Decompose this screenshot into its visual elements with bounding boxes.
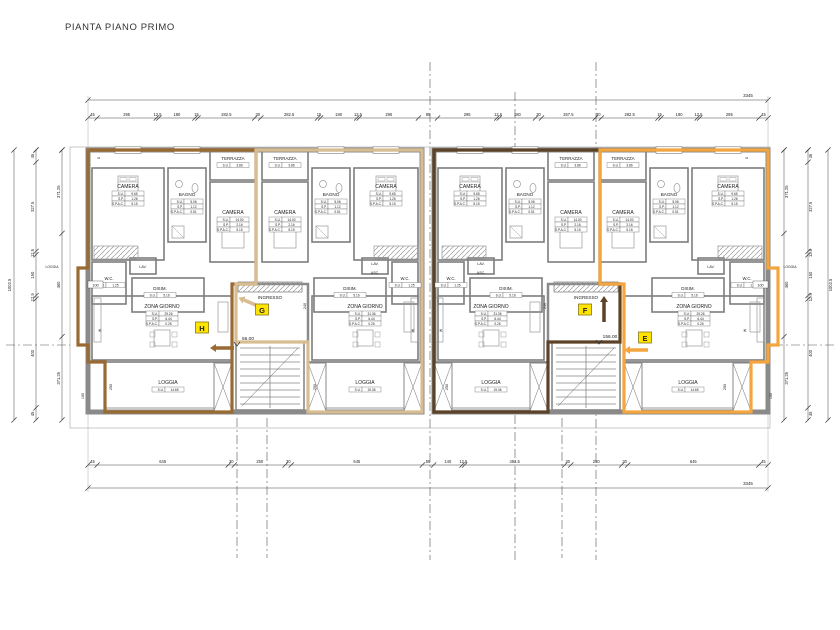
room-label-camera: CAMERA xyxy=(560,210,582,216)
dim-value: 645 xyxy=(353,459,361,464)
area-key: S.U. xyxy=(152,312,158,316)
area-value: 14.65 xyxy=(171,388,179,392)
area-key: S.U. xyxy=(678,293,684,297)
floor-plan-canvas: CAMERAS.U.9.65S.P.1.26S.P.A.C.5.15CAMERA… xyxy=(0,0,840,630)
dim-value: 45 xyxy=(761,459,766,464)
area-key: S.P.A.C. xyxy=(171,210,183,214)
area-value: 3.86 xyxy=(574,163,580,167)
area-key: S.U. xyxy=(678,388,684,392)
dim-value: 371.25 xyxy=(784,371,789,384)
dim-value: 45 xyxy=(30,153,35,158)
room-label-camera: CAMERA xyxy=(274,210,296,216)
area-value: 2.16 xyxy=(236,223,242,227)
area-key: S.U. xyxy=(177,200,183,204)
area-value: 31.36 xyxy=(494,312,502,316)
area-value: 19.36 xyxy=(368,388,376,392)
dim-value: 45 xyxy=(808,153,813,158)
dim-total-value: 1002.5 xyxy=(828,278,833,291)
area-key: S.U. xyxy=(395,283,401,287)
dim-value: 45 xyxy=(90,112,95,117)
dim-value: 30 xyxy=(622,459,627,464)
dim-value: 30 xyxy=(229,459,234,464)
area-value: 5.06 xyxy=(528,200,534,204)
room-label-terrazza: TERRAZZA xyxy=(559,156,582,161)
area-key: S.P. xyxy=(613,223,619,227)
area-value: 5.06 xyxy=(334,200,340,204)
dim-value: 12.5 xyxy=(30,293,35,302)
area-key: S.U. xyxy=(613,163,619,167)
area-value: 1.12 xyxy=(528,205,534,209)
room-label-zona-giorno: ZONA GIORNO xyxy=(144,304,179,310)
room-label-bagno: BAGNO xyxy=(517,192,534,197)
unit-marker-letter: F xyxy=(583,306,588,315)
area-key: S.P. xyxy=(355,317,361,321)
area-key: S.P.A.C. xyxy=(349,322,361,326)
area-value: 6.44 xyxy=(494,317,500,321)
dim-value: 400 xyxy=(808,349,813,357)
dim-250: 250 xyxy=(445,384,449,390)
area-value: 1.25 xyxy=(112,283,118,287)
dim-value: 295 xyxy=(385,112,393,117)
area-key: S.U. xyxy=(561,218,567,222)
area-value: 1.25 xyxy=(408,283,414,287)
dim-value: 15 xyxy=(657,112,662,117)
area-key: S.P.A.C. xyxy=(315,210,327,214)
dim-value: 295 xyxy=(123,112,131,117)
area-value: 3.86 xyxy=(288,163,294,167)
area-value: 5.06 xyxy=(672,200,678,204)
dim-value: 15 xyxy=(317,112,322,117)
dim-value: 250 xyxy=(256,459,264,464)
area-key: S.P.A.C. xyxy=(509,210,521,214)
area-key: S.U. xyxy=(659,200,665,204)
area-value: 1.12 xyxy=(334,205,340,209)
dim-value: 140 xyxy=(444,459,452,464)
room-label-disim: DISIM. xyxy=(153,286,166,291)
area-key: S.U. xyxy=(515,200,521,204)
room-label-loggia: LOGGIA xyxy=(481,380,501,386)
unit-marker-letter: E xyxy=(642,334,647,343)
wardrobe xyxy=(442,246,486,259)
area-value: 0.26 xyxy=(368,322,374,326)
area-key: S.P. xyxy=(561,223,567,227)
dim-total-value: 3345 xyxy=(743,93,753,98)
room-label-loggia: LOGGIA xyxy=(678,380,698,386)
dim-value: 295 xyxy=(726,112,734,117)
dim-value: 15 xyxy=(194,112,199,117)
area-value: 3.86 xyxy=(236,163,242,167)
area-key: S.P. xyxy=(460,197,466,201)
dim-value: 250 xyxy=(593,459,601,464)
room-label-asc: ASC. xyxy=(371,271,379,275)
area-value: 3.86 xyxy=(626,163,632,167)
dim-100: 100 xyxy=(757,283,763,287)
area-value: 1.26 xyxy=(389,197,395,201)
area-key: S.P. xyxy=(275,223,281,227)
dim-value: 645 xyxy=(159,459,167,464)
area-key: S.U. xyxy=(460,192,466,196)
area-value: 5.06 xyxy=(190,200,196,204)
area-value: 5.16 xyxy=(509,293,515,297)
area-value: 1.26 xyxy=(131,197,137,201)
room-label-disim: DISIM. xyxy=(343,286,356,291)
area-key: S.P.A.C. xyxy=(475,322,487,326)
room-label-zona-giorno: ZONA GIORNO xyxy=(473,304,508,310)
area-value: 9.65 xyxy=(731,192,737,196)
dim-value: 12.5 xyxy=(808,293,813,302)
area-key: S.U. xyxy=(223,163,229,167)
area-value: 5.16 xyxy=(353,293,359,297)
dim-value: 492.5 xyxy=(510,459,521,464)
dim-value: 30 xyxy=(286,459,291,464)
area-value: 29.26 xyxy=(165,312,173,316)
area-key: S.P. xyxy=(321,205,327,209)
area-value: 0.51 xyxy=(334,210,340,214)
area-value: 0.51 xyxy=(672,210,678,214)
area-key: S.P. xyxy=(177,205,183,209)
area-key: S.P.A.C. xyxy=(269,228,281,232)
area-key: S.P. xyxy=(223,223,229,227)
dim-240: 240 xyxy=(303,303,307,309)
area-key: S.U. xyxy=(613,218,619,222)
room-label-camera: CAMERA xyxy=(117,184,139,190)
room-label-disim: DISIM. xyxy=(499,286,512,291)
area-value: 5.15 xyxy=(473,202,479,206)
area-key: S.U. xyxy=(321,200,327,204)
area-value: 19.36 xyxy=(494,388,502,392)
wardrobe xyxy=(718,246,762,259)
area-value: 5.15 xyxy=(574,228,580,232)
room-label-zona-giorno: ZONA GIORNO xyxy=(676,304,711,310)
dim-value: 45 xyxy=(808,411,813,416)
area-value: 1.25 xyxy=(454,283,460,287)
level-value: 156.00 xyxy=(603,334,618,340)
area-key: S.U. xyxy=(684,312,690,316)
area-key: S.P. xyxy=(718,197,724,201)
dim-value: 295 xyxy=(464,112,472,117)
area-key: S.P.A.C. xyxy=(555,228,567,232)
area-key: S.U. xyxy=(275,163,281,167)
area-key: S.U. xyxy=(355,312,361,316)
dim-value: 12.5 xyxy=(30,248,35,257)
side-loggia-label: LOGGIA xyxy=(783,265,797,269)
dim-value: 371.25 xyxy=(56,371,61,384)
dim-value: 371.25 xyxy=(784,185,789,198)
room-label-camera: CAMERA xyxy=(717,184,739,190)
area-value: 5.16 xyxy=(691,293,697,297)
area-key: S.U. xyxy=(481,388,487,392)
area-value: 0.26 xyxy=(165,322,171,326)
dim-value: 180 xyxy=(173,112,181,117)
area-value: 5.15 xyxy=(288,228,294,232)
dim-250: 250 xyxy=(313,384,317,390)
dim-value: 282.5 xyxy=(284,112,295,117)
area-key: S.U. xyxy=(376,192,382,196)
dim-250: 250 xyxy=(109,384,113,390)
dim-value: 30 xyxy=(255,112,260,117)
room-label-disim: DISIM. xyxy=(681,286,694,291)
side-loggia-label: LOGGIA xyxy=(45,265,59,269)
room-label-camera: CAMERA xyxy=(459,184,481,190)
area-value: 14.00 xyxy=(626,218,634,222)
wardrobe xyxy=(374,246,418,259)
area-key: S.U. xyxy=(223,218,229,222)
area-value: 14.65 xyxy=(691,388,699,392)
dim-value: 30 xyxy=(565,459,570,464)
area-key: S.P.A.C. xyxy=(370,202,382,206)
level-value: 56.00 xyxy=(242,336,254,342)
area-key: S.U. xyxy=(561,163,567,167)
area-key: S.U. xyxy=(496,293,502,297)
dim-value: 371.25 xyxy=(56,185,61,198)
wardrobe xyxy=(94,246,138,259)
dim-value: 460 xyxy=(56,281,61,289)
area-value: 0.26 xyxy=(697,322,703,326)
room-label-terrazza: TERRAZZA xyxy=(221,156,244,161)
dim-value: 30 xyxy=(536,112,541,117)
area-value: 5.15 xyxy=(389,202,395,206)
area-key: S.P.A.C. xyxy=(712,202,724,206)
dim-value: 327.5 xyxy=(808,201,813,212)
dim-value: 150 xyxy=(30,271,35,279)
area-value: 9.65 xyxy=(389,192,395,196)
room-label-camera: CAMERA xyxy=(375,184,397,190)
room-label-lav: LAV. xyxy=(477,262,484,266)
area-key: S.U. xyxy=(158,388,164,392)
room-label-wc: W.C. xyxy=(104,276,113,281)
dim-250: 250 xyxy=(723,384,727,390)
area-key: S.U. xyxy=(737,283,743,287)
room-label-bagno: BAGNO xyxy=(323,192,340,197)
area-key: S.P.A.C. xyxy=(607,228,619,232)
area-value: 9.65 xyxy=(473,192,479,196)
area-value: 0.51 xyxy=(528,210,534,214)
area-key: S.P. xyxy=(481,317,487,321)
dim-value: 327.5 xyxy=(30,201,35,212)
dim-value: 45 xyxy=(761,112,766,117)
area-value: 14.00 xyxy=(574,218,582,222)
area-value: 6.44 xyxy=(368,317,374,321)
area-key: S.U. xyxy=(481,312,487,316)
area-value: 1.26 xyxy=(731,197,737,201)
area-key: S.P.A.C. xyxy=(146,322,158,326)
room-label-wc: W.C. xyxy=(400,276,409,281)
dim-value: 180 xyxy=(676,112,684,117)
area-value: 29.26 xyxy=(697,312,705,316)
room-label-terrazza: TERRAZZA xyxy=(273,156,296,161)
area-value: 1.26 xyxy=(473,197,479,201)
area-key: S.P.A.C. xyxy=(112,202,124,206)
room-label-terrazza: TERRAZZA xyxy=(611,156,634,161)
area-value: 14.00 xyxy=(236,218,244,222)
room-label-bagno: BAGNO xyxy=(661,192,678,197)
room-label-camera: CAMERA xyxy=(222,210,244,216)
dim-value: 282.5 xyxy=(221,112,232,117)
room-label-wc: W.C. xyxy=(446,276,455,281)
unit-marker-letter: G xyxy=(259,306,265,315)
dim-value: 400 xyxy=(30,349,35,357)
dim-value: 55 xyxy=(426,459,431,464)
area-value: 2.16 xyxy=(574,223,580,227)
area-value: 2.16 xyxy=(626,223,632,227)
dim-value: 282.5 xyxy=(625,112,636,117)
dim-100: 100 xyxy=(769,393,773,399)
dim-value: 180 xyxy=(335,112,343,117)
area-value: 31.36 xyxy=(368,312,376,316)
room-label-bagno: BAGNO xyxy=(179,192,196,197)
drawing-sheet: PIANTA PIANO PRIMO CAMERAS.U.9.65S.P.1.2… xyxy=(0,0,840,630)
room-label-wc: W.C. xyxy=(742,276,751,281)
dim-value: 45 xyxy=(90,459,95,464)
area-value: 1.12 xyxy=(672,205,678,209)
room-label-lav: LAV. xyxy=(371,262,378,266)
room-label-loggia: LOGGIA xyxy=(158,380,178,386)
area-key: S.U. xyxy=(275,218,281,222)
area-value: 1.12 xyxy=(190,205,196,209)
dim-total-value: 3345 xyxy=(743,481,753,486)
area-key: S.P. xyxy=(659,205,665,209)
area-value: 0.26 xyxy=(494,322,500,326)
dim-value: 645 xyxy=(690,459,698,464)
dim-value: 12.5 xyxy=(808,248,813,257)
area-key: S.U. xyxy=(118,192,124,196)
dim-value: 30 xyxy=(596,112,601,117)
dim-total-value: 1002.5 xyxy=(7,278,12,291)
dim-value: 45 xyxy=(30,411,35,416)
area-key: S.P.A.C. xyxy=(454,202,466,206)
area-value: 14.00 xyxy=(288,218,296,222)
area-key: S.P. xyxy=(152,317,158,321)
area-value: 5.15 xyxy=(131,202,137,206)
room-label-zona-giorno: ZONA GIORNO xyxy=(347,304,382,310)
room-label-camera: CAMERA xyxy=(612,210,634,216)
area-value: 6.44 xyxy=(697,317,703,321)
room-label-loggia: LOGGIA xyxy=(355,380,375,386)
room-label-asc: ASC. xyxy=(477,271,485,275)
unit-marker-letter: H xyxy=(199,324,204,333)
area-key: S.U. xyxy=(441,283,447,287)
dim-value: 150 xyxy=(808,271,813,279)
area-key: S.P.A.C. xyxy=(678,322,690,326)
area-value: 0.51 xyxy=(190,210,196,214)
area-key: S.P. xyxy=(376,197,382,201)
area-key: S.P. xyxy=(515,205,521,209)
area-key: S.P.A.C. xyxy=(653,210,665,214)
area-key: S.U. xyxy=(718,192,724,196)
layer-walls xyxy=(78,150,778,412)
area-key: S.U. xyxy=(355,388,361,392)
area-value: 5.15 xyxy=(626,228,632,232)
area-key: S.P. xyxy=(684,317,690,321)
room-label-ingresso: INGRESSO xyxy=(258,295,283,300)
room-label-ingresso: INGRESSO xyxy=(574,295,599,300)
room-label-lav: LAV. xyxy=(139,265,146,269)
dim-240: 240 xyxy=(543,303,547,309)
area-value: 5.15 xyxy=(731,202,737,206)
area-value: 2.16 xyxy=(288,223,294,227)
dim-100: 100 xyxy=(81,393,85,399)
area-value: 9.65 xyxy=(131,192,137,196)
area-key: S.P.A.C. xyxy=(217,228,229,232)
area-value: 5.15 xyxy=(236,228,242,232)
room-label-lav: LAV. xyxy=(707,265,714,269)
area-value: 5.16 xyxy=(163,293,169,297)
area-key: S.U. xyxy=(150,293,156,297)
area-key: S.P. xyxy=(118,197,124,201)
dim-value: 95 xyxy=(426,112,431,117)
dim-100: 100 xyxy=(92,283,98,287)
dim-value: 180 xyxy=(514,112,522,117)
dim-value: 267.5 xyxy=(563,112,574,117)
area-key: S.U. xyxy=(340,293,346,297)
area-value: 6.44 xyxy=(165,317,171,321)
dim-value: 460 xyxy=(784,281,789,289)
